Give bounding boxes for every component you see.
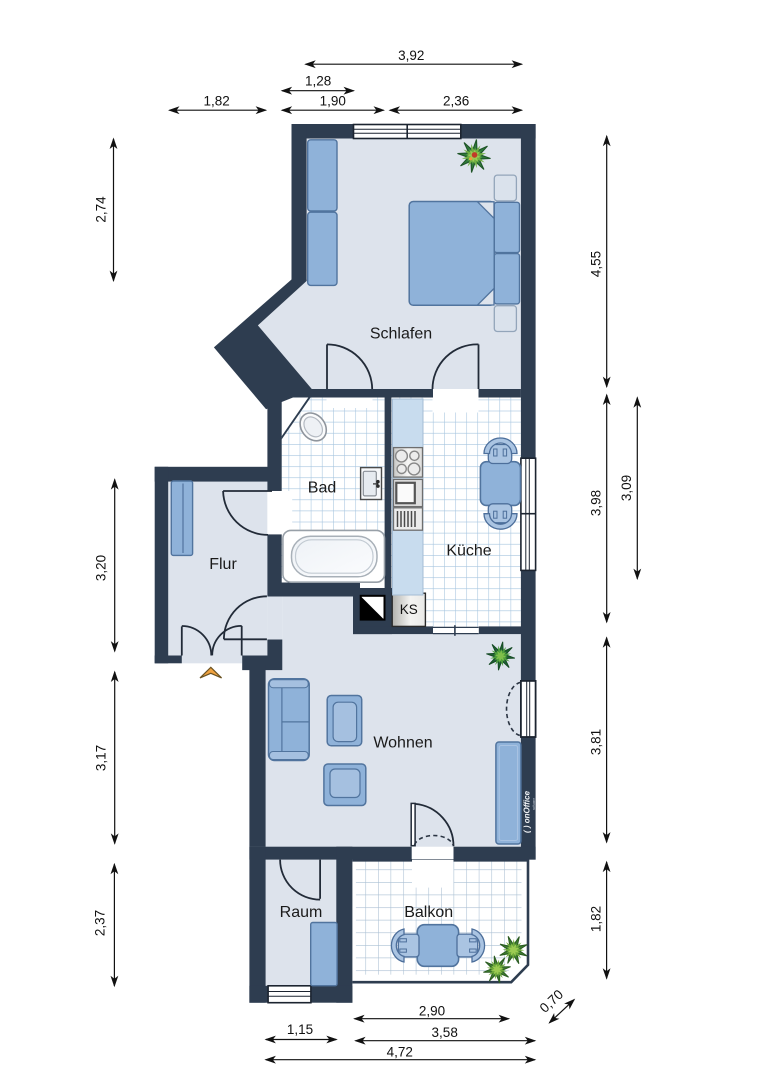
svg-text:1,15: 1,15 [287, 1022, 313, 1037]
svg-text:software: software [532, 798, 536, 810]
svg-text:3,81: 3,81 [589, 729, 604, 755]
svg-text:3,98: 3,98 [589, 490, 604, 516]
svg-text:3,20: 3,20 [94, 555, 109, 581]
svg-text:2,36: 2,36 [443, 94, 469, 109]
svg-text:3,09: 3,09 [619, 475, 634, 501]
svg-text:2,37: 2,37 [93, 910, 108, 936]
svg-text:3,92: 3,92 [398, 48, 424, 63]
svg-text:3,17: 3,17 [94, 745, 109, 771]
svg-text:Bad: Bad [308, 480, 336, 497]
svg-text:Wohnen: Wohnen [373, 735, 432, 752]
svg-text:Flur: Flur [209, 556, 237, 573]
svg-text:Raum: Raum [280, 904, 323, 921]
svg-text:( ) onOffice: ( ) onOffice [523, 790, 532, 833]
svg-text:2,74: 2,74 [94, 196, 109, 223]
svg-text:4,72: 4,72 [387, 1045, 413, 1060]
svg-text:Küche: Küche [446, 543, 491, 560]
svg-text:KS: KS [400, 602, 418, 617]
svg-text:4,55: 4,55 [589, 251, 604, 277]
svg-text:Balkon: Balkon [404, 904, 453, 921]
svg-text:1,28: 1,28 [305, 74, 331, 89]
svg-text:3,58: 3,58 [432, 1025, 458, 1040]
svg-text:1,82: 1,82 [589, 906, 604, 932]
svg-text:Schlafen: Schlafen [370, 326, 432, 343]
svg-text:2,90: 2,90 [419, 1004, 445, 1019]
svg-text:1,82: 1,82 [203, 94, 229, 109]
svg-text:1,90: 1,90 [320, 94, 346, 109]
